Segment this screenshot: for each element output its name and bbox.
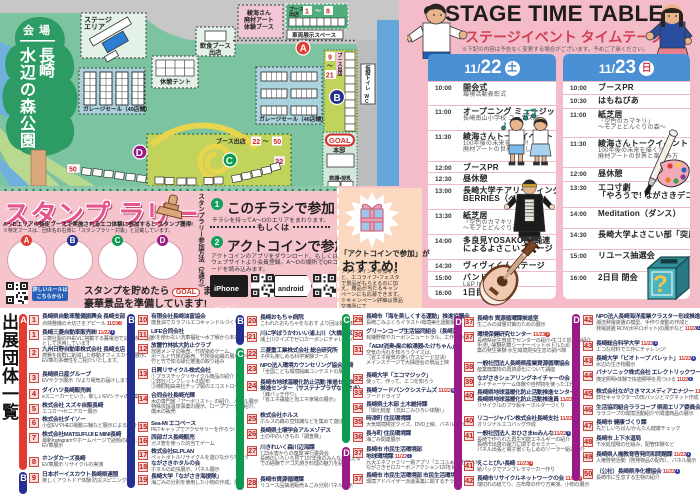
svg-text:C: C — [226, 156, 233, 167]
svg-text:ガレージセール（40店舗）: ガレージセール（40店舗） — [83, 105, 151, 113]
svg-text:9: 9 — [328, 55, 332, 62]
svg-text:仮設トイレ: 仮設トイレ — [364, 64, 371, 92]
svg-text:50: 50 — [69, 166, 77, 173]
svg-text:B: B — [334, 93, 341, 104]
svg-text:綾海さん: 綾海さん — [246, 9, 271, 17]
svg-text:ガレージセール（46店舗）: ガレージセール（46店舗） — [259, 115, 327, 123]
svg-text:エリア: エリア — [84, 23, 105, 31]
svg-text:ブース出店: ブース出店 — [216, 138, 246, 146]
svg-text:〜: 〜 — [327, 64, 333, 70]
svg-text:8: 8 — [326, 9, 330, 16]
svg-text:出店: 出店 — [209, 49, 222, 57]
svg-text:A: A — [300, 44, 307, 55]
svg-text:体験ブース: 体験ブース — [244, 23, 274, 31]
svg-text:救護・授乳: 救護・授乳 — [329, 174, 352, 182]
svg-text:休憩テント: 休憩テント — [159, 78, 191, 86]
svg-text:1: 1 — [305, 9, 309, 16]
svg-text:〜: 〜 — [315, 9, 321, 15]
svg-text:21: 21 — [326, 73, 334, 80]
svg-text:〜: 〜 — [263, 140, 269, 146]
svg-text:22: 22 — [252, 139, 260, 146]
svg-text:長崎: 長崎 — [39, 47, 56, 80]
svg-text:本部: 本部 — [332, 147, 346, 155]
svg-text:ブース出店: ブース出店 — [338, 52, 343, 77]
svg-text:D: D — [136, 148, 143, 159]
svg-text:ステージ: ステージ — [84, 16, 112, 24]
svg-text:50: 50 — [273, 139, 281, 146]
svg-text:GOAL: GOAL — [329, 136, 351, 145]
svg-text:会場: 会場 — [23, 23, 55, 37]
svg-text:廃材アート: 廃材アート — [244, 16, 274, 24]
svg-text:出店: 出店 — [289, 11, 299, 18]
svg-text:水辺の森公園: 水辺の森公園 — [19, 46, 37, 150]
svg-text:車両展示スペース: 車両展示スペース — [292, 31, 336, 39]
